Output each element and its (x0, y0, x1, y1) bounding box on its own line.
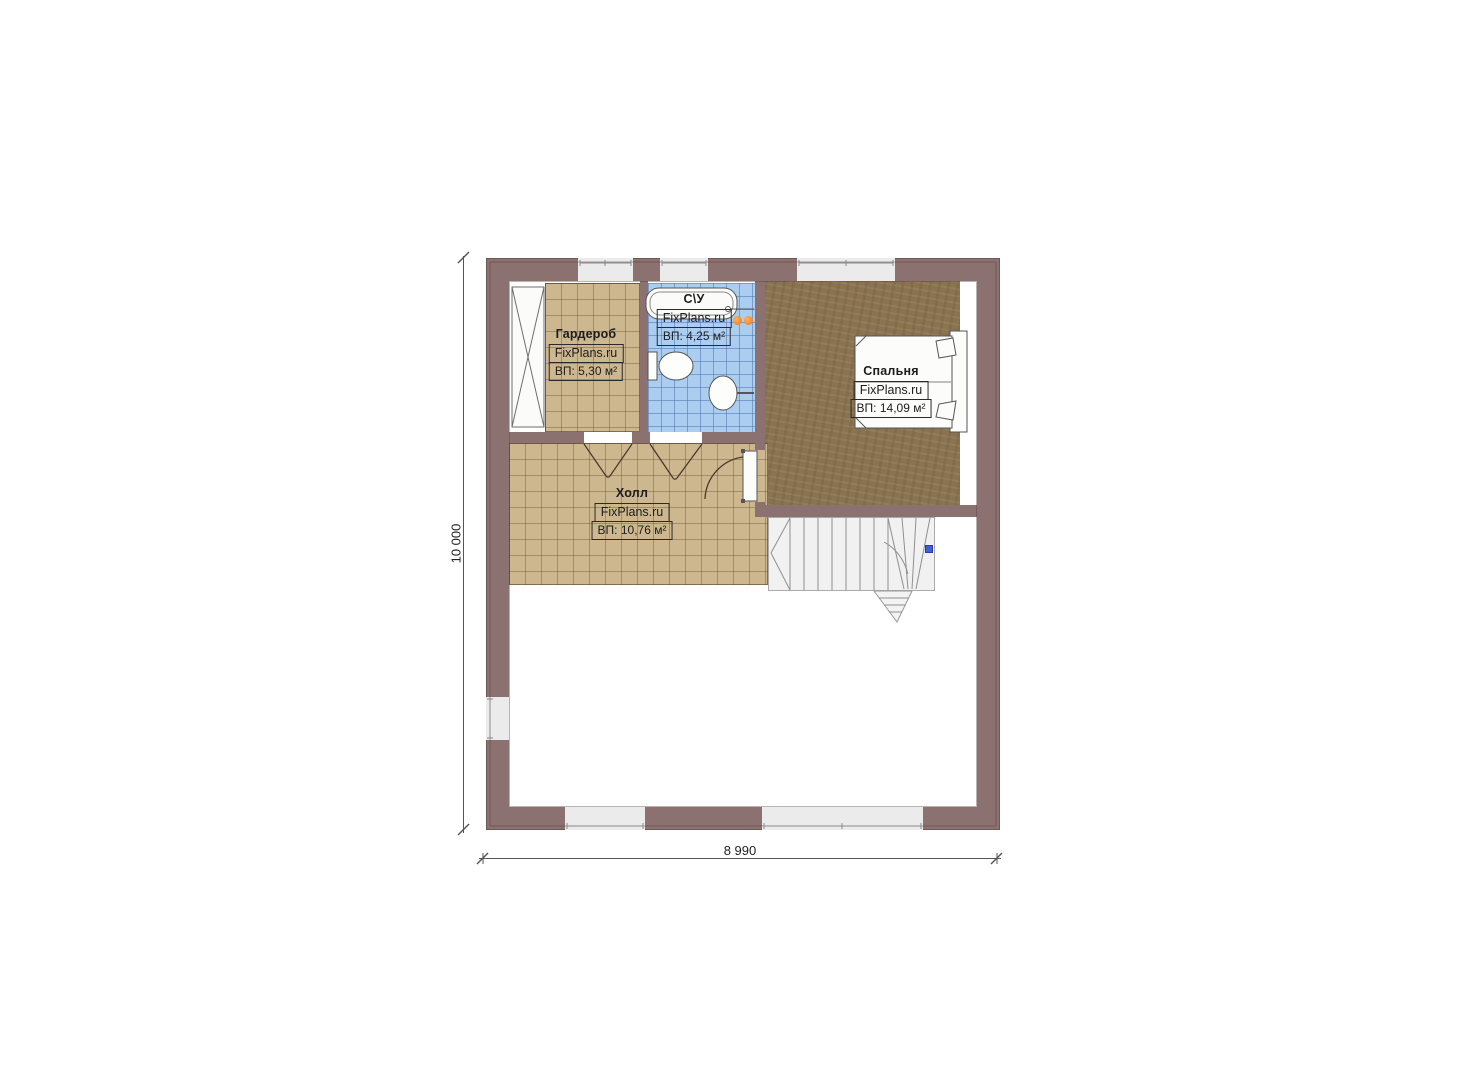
wardrobe-label: Гардероб FixPlans.ru ВП: 5,30 м² (549, 327, 624, 381)
dimension-width-label: 8 990 (690, 843, 790, 858)
bedroom-area: ВП: 14,09 м² (851, 399, 932, 418)
bathroom-brand: FixPlans.ru (657, 309, 732, 328)
window-bottom-1 (565, 807, 645, 830)
bedroom-label: Спальня FixPlans.ru ВП: 14,09 м² (851, 364, 932, 418)
window-bottom-2 (762, 807, 923, 830)
radiator-dot-1 (733, 316, 742, 325)
floor-plan-page: Гардероб FixPlans.ru ВП: 5,30 м² С\У Fix… (0, 0, 1474, 1080)
hall-label: Холл FixPlans.ru ВП: 10,76 м² (592, 486, 673, 540)
wardrobe-name: Гардероб (556, 327, 617, 341)
radiator-dot-2 (744, 316, 753, 325)
window-top-3 (797, 258, 895, 281)
wall-hall-top-c (702, 432, 765, 443)
wall-hall-top-b (632, 432, 650, 443)
bedroom-name: Спальня (863, 364, 918, 378)
wall-bedroom-left-upper (755, 443, 765, 450)
stair-marker (925, 545, 933, 553)
wardrobe-brand: FixPlans.ru (549, 344, 624, 363)
dimension-height-label: 10 000 (449, 520, 464, 568)
bedroom-brand: FixPlans.ru (854, 381, 929, 400)
bathroom-label: С\У FixPlans.ru ВП: 4,25 м² (657, 292, 732, 346)
wall-wardrobe-bathroom (640, 281, 648, 432)
wall-hall-top-a (509, 432, 584, 443)
window-left (486, 697, 509, 740)
bathroom-name: С\У (684, 292, 705, 306)
wardrobe-area: ВП: 5,30 м² (549, 362, 623, 381)
hall-area: ВП: 10,76 м² (592, 521, 673, 540)
wall-bathroom-bedroom (755, 281, 765, 443)
stairs-area (768, 517, 935, 591)
hall-name: Холл (616, 486, 648, 500)
bathroom-area: ВП: 4,25 м² (657, 327, 731, 346)
window-top-1 (578, 258, 633, 281)
wall-below-bedroom (755, 505, 977, 517)
window-top-2 (660, 258, 708, 281)
hall-brand: FixPlans.ru (595, 503, 670, 522)
